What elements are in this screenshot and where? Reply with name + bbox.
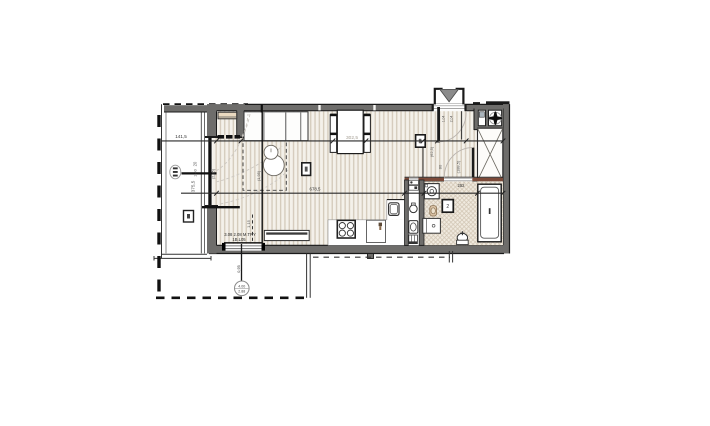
svg-text:(2,85): (2,85)	[211, 168, 216, 179]
svg-text:1,15: 1,15	[246, 219, 251, 228]
svg-text:0,95: 0,95	[237, 265, 241, 272]
svg-text:1B.L05: 1B.L05	[232, 237, 246, 242]
svg-text:(62,5): (62,5)	[429, 146, 434, 157]
svg-text:(188,5): (188,5)	[456, 160, 461, 173]
svg-text:20: 20	[193, 161, 198, 166]
svg-text:252: 252	[458, 183, 466, 188]
svg-text:141,5: 141,5	[175, 134, 187, 139]
svg-text:(1,95): (1,95)	[256, 170, 261, 181]
svg-text:302,5: 302,5	[346, 135, 358, 141]
svg-text:80: 80	[438, 164, 443, 169]
svg-text:4.00: 4.00	[238, 284, 245, 288]
svg-text:2.88: 2.88	[238, 289, 245, 293]
svg-text:2: 2	[446, 204, 449, 210]
svg-text:678,5: 678,5	[310, 186, 322, 191]
svg-text:2,04: 2,04	[450, 116, 454, 123]
svg-text:1,04: 1,04	[442, 116, 446, 123]
svg-text:375,5: 375,5	[191, 180, 196, 192]
svg-text:1,40: 1,40	[194, 169, 198, 176]
